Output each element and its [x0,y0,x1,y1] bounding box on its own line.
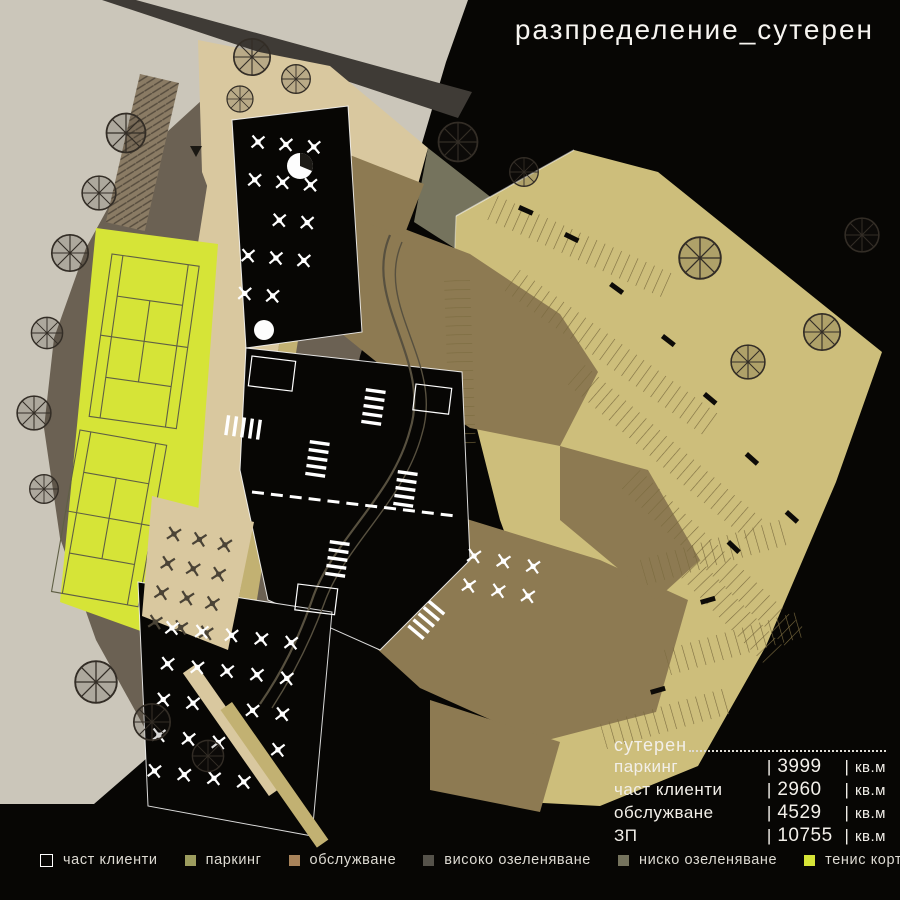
legend-item: обслужване [289,852,397,868]
legend-label: високо озеленяване [444,852,591,868]
stats-separator: | [761,802,777,823]
stats-row: паркинг | 3999 | кв.м [614,756,886,778]
stats-separator: | [761,756,777,777]
legend-label: част клиенти [63,852,158,868]
page-title: разпределение_сутерен [515,14,874,46]
stats-header: сутерен [614,735,886,755]
stats-row-label: обслужване [614,802,761,823]
legend-item: част клиенти [40,852,158,868]
legend-swatch [40,854,53,867]
stats-rows: паркинг | 3999 | кв.м част клиенти | 296… [614,756,886,847]
stats-row-value: 4529 [777,802,839,823]
stats-separator: | [761,825,777,846]
stats-row-unit: кв.м [855,803,886,824]
stats-row-label: част клиенти [614,779,761,800]
stats-row-unit: кв.м [855,757,886,778]
stats-row: част клиенти | 2960 | кв.м [614,779,886,801]
stats-row-unit: кв.м [855,826,886,847]
stats-separator: | [839,802,855,823]
legend-label: паркинг [206,852,262,868]
legend-label: обслужване [310,852,397,868]
dotted-leader [689,750,886,752]
stats-row-value: 3999 [777,756,839,777]
legend-swatch [618,855,629,866]
legend-item: паркинг [185,852,262,868]
legend-item: високо озеленяване [423,852,591,868]
stats-separator: | [839,779,855,800]
legend: част клиенти паркинг обслужване високо о… [40,852,890,868]
stats-row: ЗП | 10755 | кв.м [614,825,886,847]
legend-label: тенис корт [825,852,900,868]
stats-row-label: ЗП [614,825,761,846]
stats-row-label: паркинг [614,756,761,777]
stats-header-label: сутерен [614,735,687,755]
legend-swatch [804,855,815,866]
legend-swatch [423,855,434,866]
legend-swatch [289,855,300,866]
poster-page: разпределение_сутерен сутерен паркинг | … [0,0,900,900]
stats-separator: | [839,825,855,846]
legend-swatch [185,855,196,866]
area-stats: сутерен паркинг | 3999 | кв.м част клиен… [614,735,886,847]
legend-item: тенис корт [804,852,900,868]
stats-row-value: 10755 [777,825,839,846]
legend-label: ниско озеленяване [639,852,777,868]
stats-separator: | [839,756,855,777]
stats-row-unit: кв.м [855,780,886,801]
stats-separator: | [761,779,777,800]
stats-row-value: 2960 [777,779,839,800]
legend-item: ниско озеленяване [618,852,777,868]
stats-row: обслужване | 4529 | кв.м [614,802,886,824]
